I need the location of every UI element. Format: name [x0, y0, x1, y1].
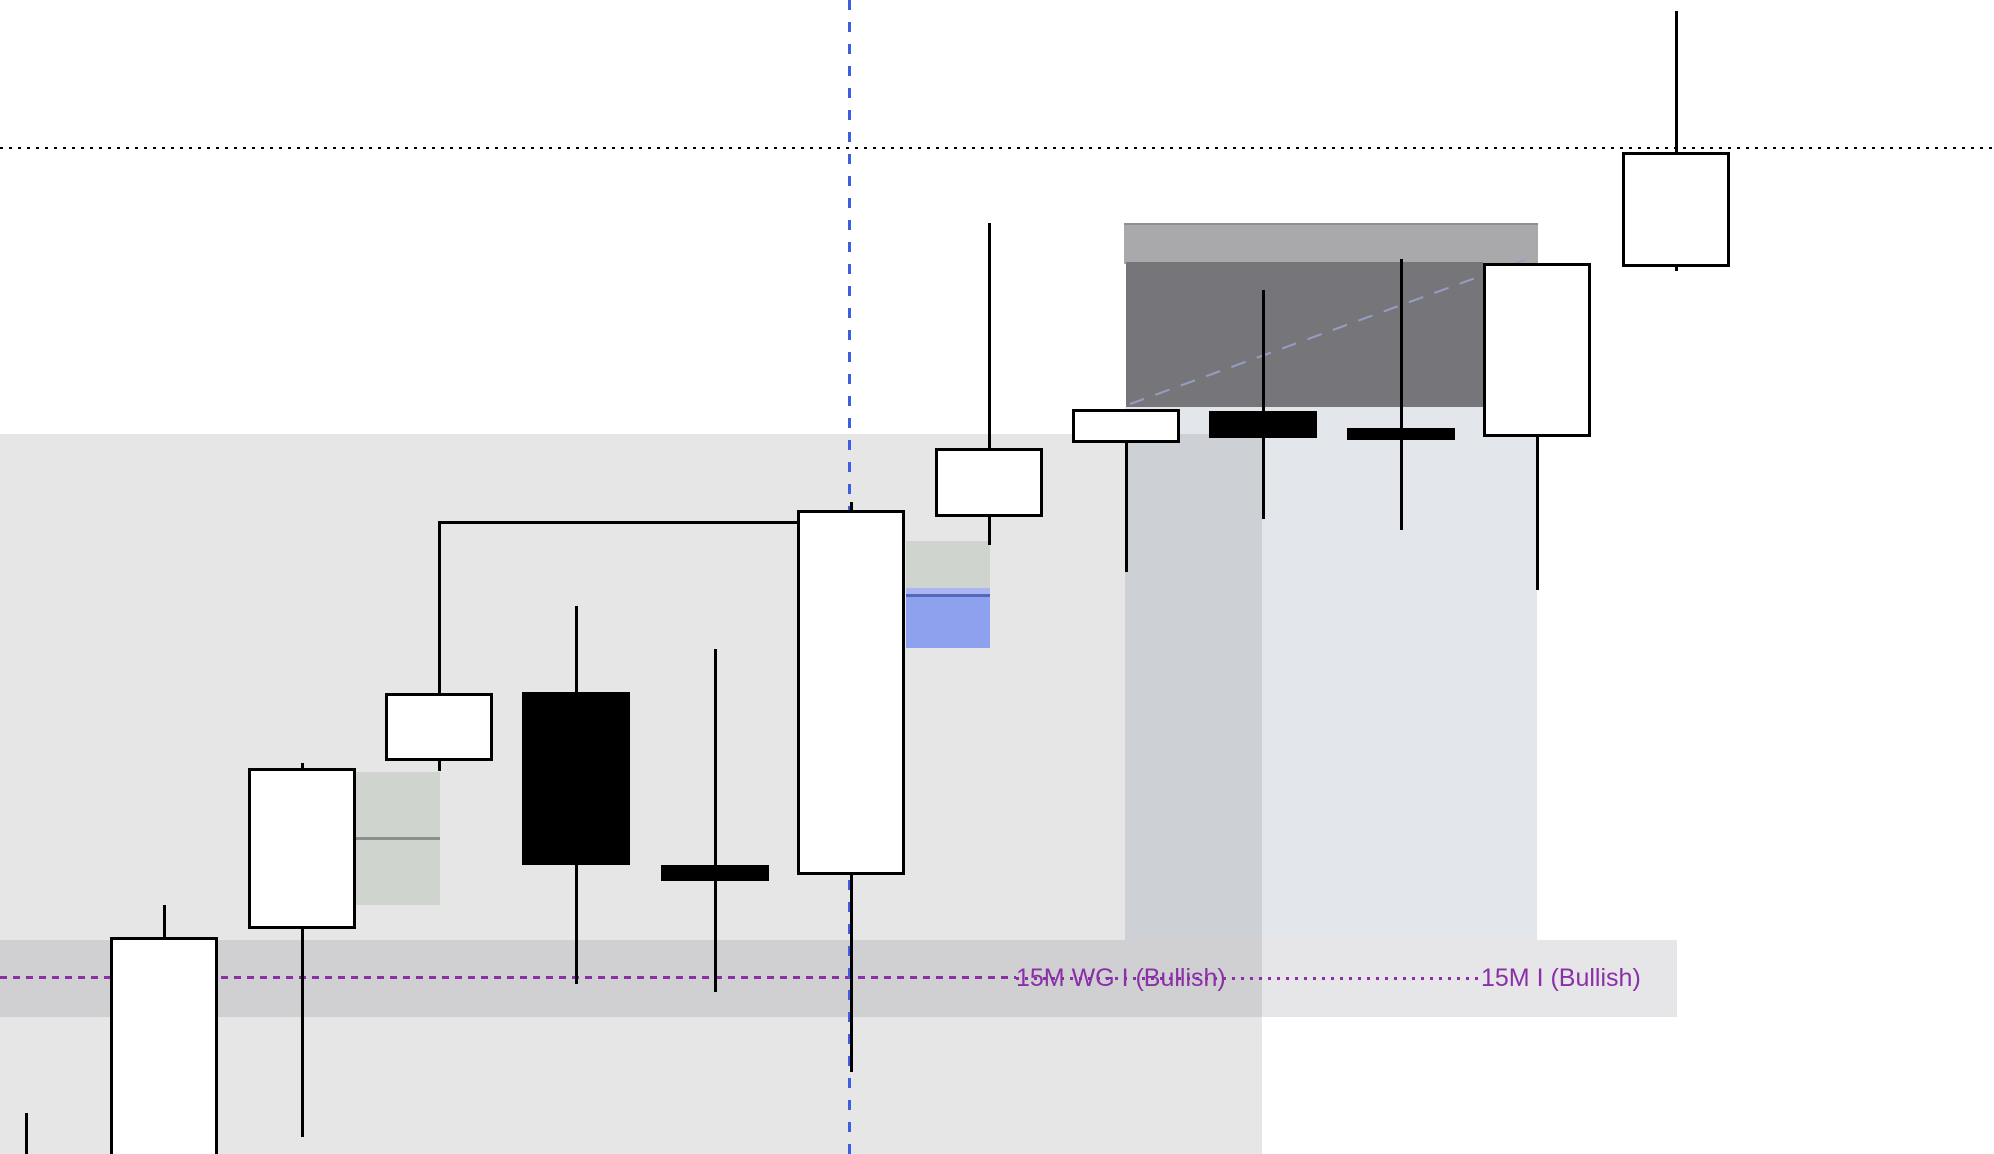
- candle-wick-c5: [714, 649, 717, 992]
- candle-body-c8: [1072, 409, 1180, 443]
- candle-body-c3: [385, 693, 493, 761]
- candle-body-c10: [1347, 428, 1455, 440]
- candle-body-c9: [1209, 411, 1317, 438]
- candle-body-c5: [661, 865, 769, 881]
- candle-wick-c9: [1262, 290, 1265, 519]
- candle-body-c12: [1622, 152, 1730, 267]
- candle-body-c1: [110, 937, 218, 1154]
- indicator-label-15m-wg-bullish[interactable]: 15M WG I (Bullish): [1016, 961, 1226, 995]
- candle-wick-c10: [1400, 259, 1403, 530]
- candle-body-c11: [1483, 263, 1591, 437]
- candle-wick-c0-partial-left-edge: [25, 1113, 28, 1154]
- candle-body-c4: [522, 692, 630, 865]
- candle-body-c7: [935, 448, 1043, 517]
- candle-body-c6: [797, 510, 905, 875]
- candlestick-chart-canvas[interactable]: 15M WG I (Bullish) 15M I (Bullish): [0, 0, 1994, 1154]
- candle-body-c2: [248, 768, 356, 929]
- indicator-label-15m-bullish[interactable]: 15M I (Bullish): [1481, 961, 1641, 995]
- candles-layer: [0, 0, 1994, 1154]
